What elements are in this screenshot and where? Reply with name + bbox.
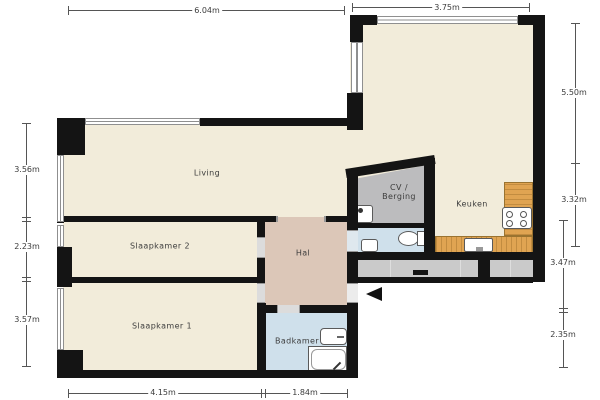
room-label-living: Living bbox=[194, 169, 220, 178]
door-bedroom2 bbox=[257, 237, 265, 258]
window-bedroom1-left bbox=[57, 288, 64, 350]
dimension-label-top-right: 3.75m bbox=[432, 3, 462, 13]
wall-bedroom-right-a bbox=[257, 222, 265, 237]
dimension-tick bbox=[22, 221, 31, 222]
dimension-tick bbox=[347, 389, 348, 398]
window-bedroom2-left bbox=[57, 225, 64, 247]
dimension-label-bottom-right: 1.84m bbox=[290, 388, 320, 398]
opening-jamb bbox=[324, 216, 326, 222]
wall-gallery-bottom bbox=[358, 277, 533, 283]
faucet-icon bbox=[337, 336, 344, 338]
dimension-tick bbox=[559, 312, 568, 313]
dimension-label-bottom-left: 4.15m bbox=[148, 388, 178, 398]
dimension-tick bbox=[22, 123, 31, 124]
wall-right bbox=[533, 15, 545, 282]
room-label-hal: Hal bbox=[296, 249, 310, 258]
wall-hall-bathroom-right bbox=[300, 305, 347, 313]
room-label-keuken: Keuken bbox=[456, 200, 488, 209]
room-label-slaapkamer2: Slaapkamer 2 bbox=[130, 242, 190, 251]
wall-hall-bathroom-left bbox=[257, 305, 277, 313]
dimension-label-left-top: 3.56m bbox=[12, 165, 42, 175]
dimension-tick bbox=[22, 277, 31, 278]
gallery-joint bbox=[510, 260, 511, 277]
wall-kitchen-left-lower bbox=[347, 93, 363, 130]
hall-floor bbox=[265, 217, 347, 305]
dimension-label-right-lower: 3.47m bbox=[548, 258, 578, 268]
entrance-arrow-icon bbox=[366, 287, 382, 301]
dimension-tick bbox=[571, 23, 580, 24]
gallery-floor-right bbox=[490, 260, 533, 277]
toilet-icon bbox=[398, 231, 419, 246]
opening-jamb bbox=[276, 216, 278, 222]
wall-living-top bbox=[200, 118, 350, 126]
window-kitchen-left bbox=[351, 42, 363, 93]
burner-icon bbox=[520, 220, 527, 227]
dimension-label-right-bottom: 2.35m bbox=[548, 330, 578, 340]
gallery-joint bbox=[390, 260, 391, 277]
dimension-label-right-middle: 3.32m bbox=[559, 195, 589, 205]
floor-plan: Living Slaapkamer 2 Slaapkamer 1 Hal Bad… bbox=[0, 0, 600, 400]
room-label-slaapkamer1: Slaapkamer 1 bbox=[132, 322, 192, 331]
dimension-tick bbox=[68, 389, 69, 398]
wall-bathroom-left bbox=[257, 303, 266, 378]
dimension-label-right-top: 5.50m bbox=[559, 88, 589, 98]
room-label-cv-berging: CV /Berging bbox=[382, 183, 416, 201]
wall-bottom bbox=[57, 370, 358, 378]
dimension-tick bbox=[22, 217, 31, 218]
dimension-tick bbox=[68, 6, 69, 15]
window-living-left bbox=[57, 155, 64, 222]
dimension-tick bbox=[559, 220, 568, 221]
dimension-label-left-bottom: 3.57m bbox=[12, 315, 42, 325]
dimension-tick bbox=[22, 281, 31, 282]
bathtub-basin bbox=[311, 349, 346, 370]
window-kitchen-top bbox=[377, 16, 518, 24]
bathtub-icon bbox=[308, 346, 347, 371]
wall-storage-right bbox=[424, 158, 435, 224]
dimension-tick bbox=[265, 389, 266, 398]
toilet-sink-icon bbox=[361, 239, 378, 252]
dimension-tick bbox=[352, 3, 353, 12]
wall-bedroom-divider bbox=[57, 277, 265, 283]
kitchen-sink-icon bbox=[464, 238, 493, 252]
dimension-label-left-middle: 2.23m bbox=[12, 242, 42, 252]
dimension-tick bbox=[559, 367, 568, 368]
door-toilet bbox=[347, 230, 358, 252]
door-entrance bbox=[347, 283, 358, 303]
stove-icon bbox=[502, 207, 532, 229]
dimension-tick bbox=[261, 389, 262, 398]
wall-hall-right-lower bbox=[347, 303, 358, 378]
burner-icon bbox=[506, 211, 513, 218]
burner-icon bbox=[506, 220, 513, 227]
wall-kitchen-bottom bbox=[347, 252, 533, 260]
dimension-label-top-left: 6.04m bbox=[192, 6, 222, 16]
dimension-line-right-inner bbox=[563, 220, 564, 368]
faucet-icon bbox=[476, 247, 483, 251]
window-living-top bbox=[85, 118, 200, 125]
door-bathroom bbox=[277, 305, 300, 313]
dimension-tick bbox=[344, 6, 345, 15]
wall-toilet-right bbox=[424, 224, 435, 254]
bathroom-sink-icon bbox=[320, 328, 347, 345]
gallery-step-mark bbox=[413, 270, 428, 275]
room-label-badkamer: Badkamer bbox=[275, 337, 319, 346]
boiler-dial-icon bbox=[358, 208, 363, 213]
wall-bedroom-right-b bbox=[257, 258, 265, 283]
wall-hall-right-upper bbox=[347, 170, 358, 230]
door-bedroom1 bbox=[257, 283, 265, 303]
dimension-tick bbox=[571, 163, 580, 164]
dimension-tick bbox=[22, 366, 31, 367]
dimension-tick bbox=[529, 3, 530, 12]
gallery-joint bbox=[460, 260, 461, 277]
wall-toilet-top bbox=[358, 223, 424, 228]
burner-icon bbox=[520, 211, 527, 218]
wall-bedroom2-top bbox=[63, 216, 278, 222]
wall-hall-right-mid bbox=[347, 250, 358, 283]
dimension-line-right-outer bbox=[575, 23, 576, 247]
dimension-tick bbox=[559, 308, 568, 309]
wall-hall-top-right bbox=[325, 216, 347, 222]
wall-kitchen-topleft bbox=[350, 15, 377, 25]
wall-living-topleft-corner bbox=[57, 118, 85, 155]
dimension-tick bbox=[571, 246, 580, 247]
